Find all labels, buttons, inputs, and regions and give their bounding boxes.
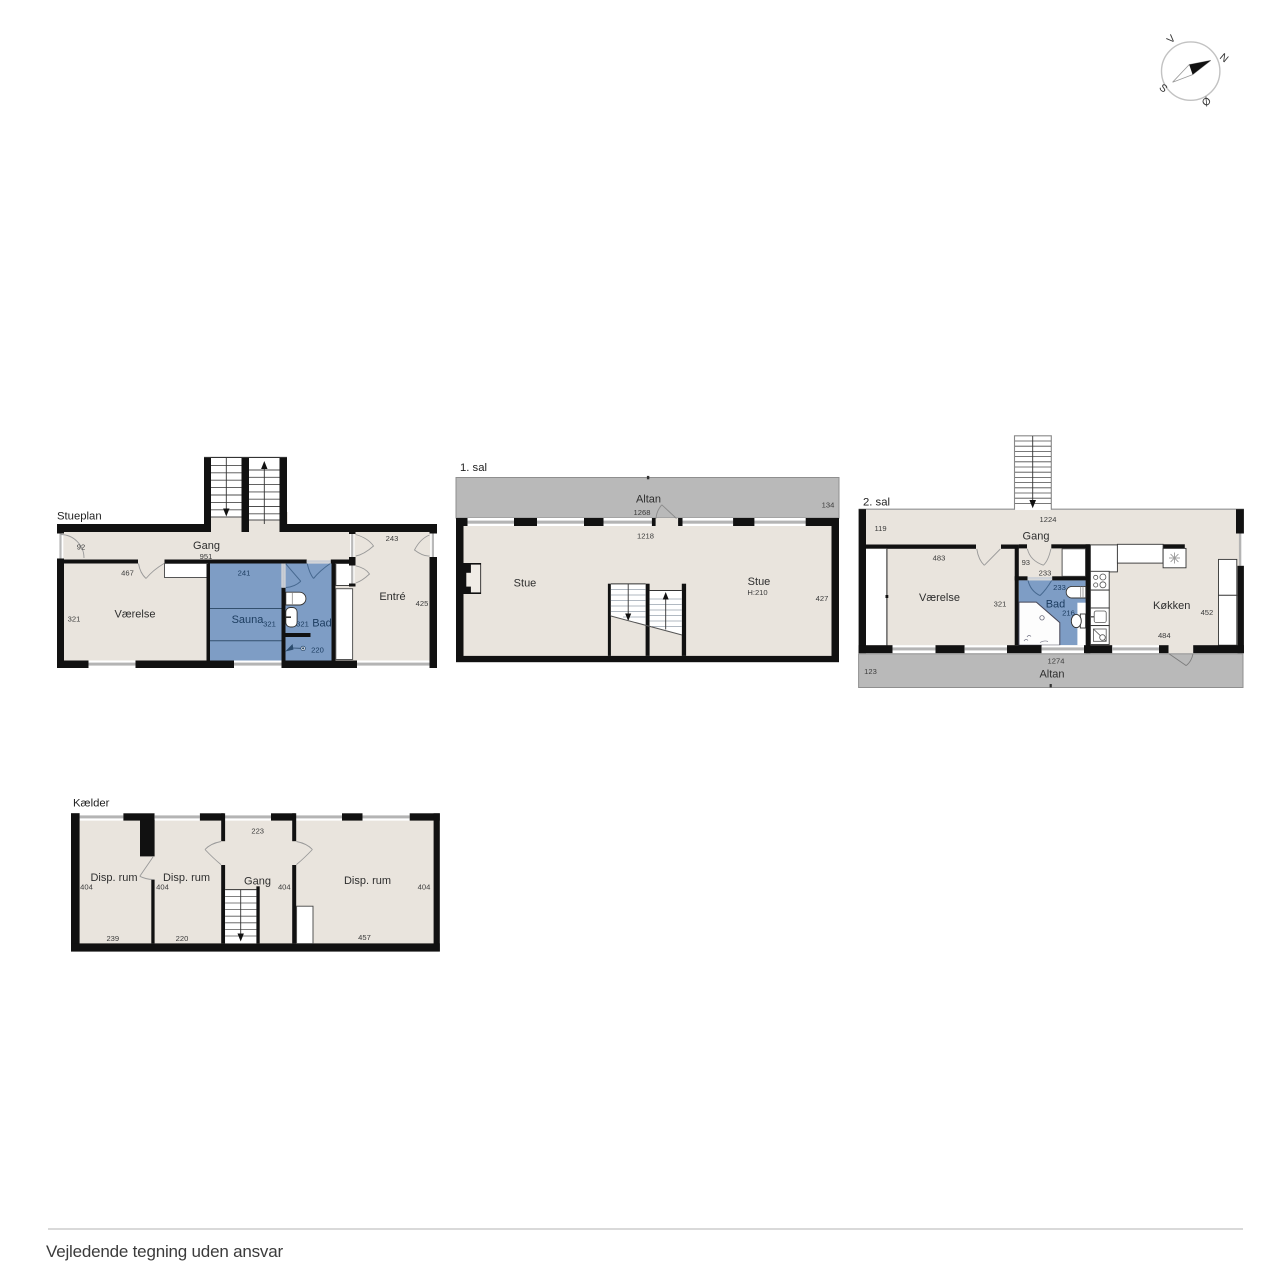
svg-text:Gang: Gang (193, 540, 220, 552)
svg-text:427: 427 (816, 594, 829, 603)
svg-text:223: 223 (251, 827, 264, 836)
svg-text:134: 134 (822, 501, 835, 510)
svg-text:Altan: Altan (1039, 669, 1064, 681)
svg-text:Stue: Stue (748, 576, 771, 588)
svg-text:Gang: Gang (1023, 531, 1050, 543)
svg-text:321: 321 (994, 600, 1007, 609)
svg-text:1218: 1218 (637, 532, 654, 541)
svg-text:Værelse: Værelse (919, 592, 960, 604)
svg-text:404: 404 (278, 883, 291, 892)
svg-text:483: 483 (933, 554, 946, 563)
svg-text:467: 467 (121, 569, 134, 578)
svg-text:425: 425 (416, 599, 429, 608)
svg-text:Vejledende tegning uden ansvar: Vejledende tegning uden ansvar (46, 1242, 283, 1261)
svg-text:321: 321 (68, 615, 81, 624)
svg-text:220: 220 (176, 934, 189, 943)
svg-text:Disp. rum: Disp. rum (90, 872, 137, 884)
svg-text:233: 233 (1039, 569, 1052, 578)
svg-text:Stue: Stue (514, 578, 537, 590)
svg-text:1268: 1268 (634, 508, 651, 517)
svg-text:H:210: H:210 (747, 588, 767, 597)
svg-text:233: 233 (1053, 583, 1066, 592)
svg-text:484: 484 (1158, 631, 1171, 640)
svg-text:220: 220 (311, 646, 324, 655)
svg-text:457: 457 (358, 933, 371, 942)
svg-text:Stueplan: Stueplan (57, 511, 102, 523)
svg-text:Værelse: Værelse (115, 609, 156, 621)
svg-text:404: 404 (418, 883, 431, 892)
svg-text:452: 452 (1201, 608, 1214, 617)
svg-text:216: 216 (1062, 609, 1075, 618)
svg-text:1224: 1224 (1040, 515, 1057, 524)
svg-text:Altan: Altan (636, 494, 661, 506)
svg-text:123: 123 (864, 667, 877, 676)
svg-text:92: 92 (77, 543, 85, 552)
svg-text:93: 93 (1022, 558, 1030, 567)
svg-text:1. sal: 1. sal (460, 462, 487, 474)
svg-text:Kælder: Kælder (73, 798, 110, 810)
svg-text:243: 243 (386, 534, 399, 543)
svg-text:404: 404 (80, 883, 93, 892)
svg-text:119: 119 (874, 524, 886, 533)
svg-text:404: 404 (156, 883, 169, 892)
svg-text:241: 241 (238, 569, 251, 578)
svg-text:Disp. rum: Disp. rum (344, 875, 391, 887)
svg-text:Bad: Bad (312, 618, 332, 630)
svg-text:321: 321 (296, 620, 309, 629)
svg-text:1274: 1274 (1048, 657, 1065, 666)
svg-text:Disp. rum: Disp. rum (163, 872, 210, 884)
svg-text:Køkken: Køkken (1153, 600, 1190, 612)
svg-text:Sauna: Sauna (232, 614, 265, 626)
svg-text:Gang: Gang (244, 876, 271, 888)
svg-text:321: 321 (263, 620, 276, 629)
svg-text:239: 239 (106, 934, 119, 943)
svg-text:Entré: Entré (379, 591, 405, 603)
svg-text:951: 951 (200, 552, 213, 561)
svg-text:2. sal: 2. sal (863, 497, 890, 509)
